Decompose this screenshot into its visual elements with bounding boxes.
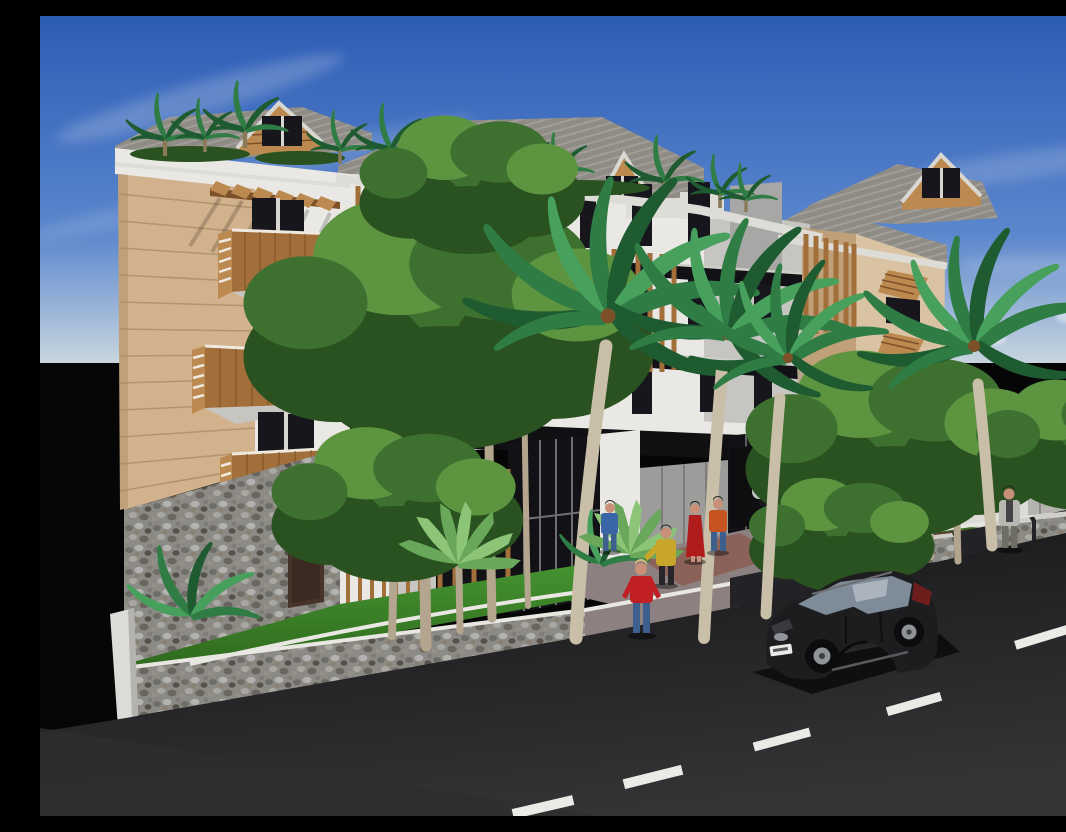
front-wheel <box>805 639 839 673</box>
brand-badge <box>774 633 788 641</box>
rear-wheel <box>894 617 924 647</box>
architectural-rendering <box>40 16 1066 816</box>
